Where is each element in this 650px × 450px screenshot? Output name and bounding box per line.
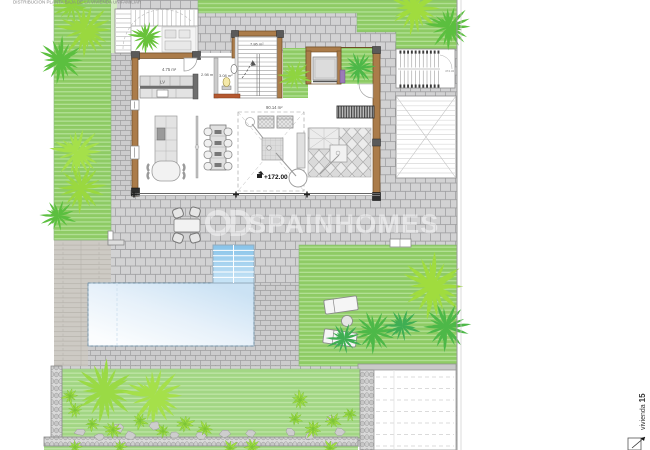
svg-text:DISTRIBUCIÓN PLANTA BAJA DE LA: DISTRIBUCIÓN PLANTA BAJA DE LA VIVIENDA … bbox=[13, 0, 142, 5]
svg-text:2.98 m: 2.98 m bbox=[201, 72, 214, 77]
svg-text:+172.00: +172.00 bbox=[264, 174, 288, 181]
svg-text:7.86 m²: 7.86 m² bbox=[250, 42, 264, 47]
svg-text:vivienda 15: vivienda 15 bbox=[638, 393, 647, 430]
svg-text:LV: LV bbox=[160, 80, 165, 85]
svg-text:4.75 m²: 4.75 m² bbox=[162, 67, 177, 72]
svg-text:474.32: 474.32 bbox=[445, 69, 455, 73]
svg-text:90.14 m²: 90.14 m² bbox=[266, 105, 283, 110]
svg-text:3.08 m²: 3.08 m² bbox=[219, 73, 233, 78]
svg-text:SPAINHOMES: SPAINHOMES bbox=[248, 209, 440, 239]
